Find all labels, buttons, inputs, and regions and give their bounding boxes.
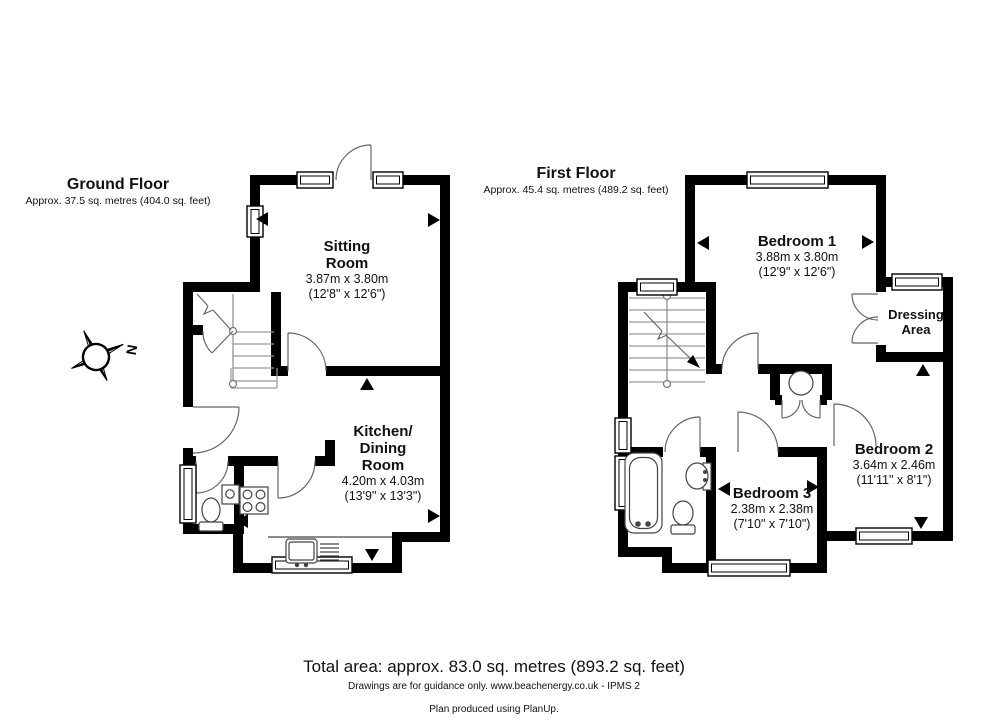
- dimension-arrow: [365, 549, 379, 561]
- dressing-door-arcs: [852, 294, 878, 343]
- window: [747, 172, 828, 188]
- bedroom3-door-arc: [738, 412, 778, 452]
- kitchen-door-arc: [278, 461, 315, 498]
- ground-floor-title: Ground Floor: [67, 176, 169, 194]
- dimension-arrow: [914, 517, 928, 529]
- first-floor-stairs: [629, 293, 705, 388]
- window: [180, 465, 196, 523]
- window: [373, 172, 403, 188]
- dimension-arrow: [697, 236, 709, 250]
- disclaimer-text: Drawings are for guidance only. www.beac…: [348, 681, 640, 693]
- ground-floor-plan: [180, 145, 450, 573]
- first-floor-title: First Floor: [536, 165, 615, 183]
- bedroom2-door-arc: [834, 404, 876, 446]
- ground-floor-stairs: [197, 294, 277, 388]
- basin-icon: [686, 463, 711, 490]
- dimension-arrow: [428, 509, 440, 523]
- bedroom3-label: Bedroom 3 2.38m x 2.38m (7'10" x 7'10"): [731, 485, 814, 532]
- window: [615, 418, 631, 453]
- dimension-arrow: [718, 482, 730, 496]
- bedroom1-label: Bedroom 1 3.88m x 3.80m (12'9" x 12'6"): [756, 233, 839, 280]
- bath-icon: [625, 453, 662, 533]
- credit-text: Plan produced using PlanUp.: [429, 704, 559, 716]
- stair-direction-line: [644, 312, 692, 360]
- total-area-text: Total area: approx. 83.0 sq. metres (893…: [303, 657, 685, 676]
- hot-water-cylinder-icon: [789, 371, 813, 395]
- bathroom-door-arc: [665, 417, 700, 452]
- stair-direction-line: [197, 294, 231, 330]
- kitchen-dining-room-label: Kitchen/ Dining Room 4.20m x 4.03m (13'9…: [342, 423, 425, 504]
- window: [637, 279, 677, 295]
- kitchen-unit-sink-icon: [222, 485, 239, 504]
- lobby-door-arc: [203, 331, 233, 353]
- window: [892, 274, 942, 290]
- toilet-icon: [671, 501, 695, 534]
- dimension-arrow: [862, 235, 874, 249]
- compass-north-label: N: [123, 343, 141, 356]
- bedroom1-door-arc: [722, 333, 758, 369]
- bedroom2-label: Bedroom 2 3.64m x 2.46m (11'11" x 8'1"): [853, 441, 936, 488]
- ground-floor-area: Approx. 37.5 sq. metres (404.0 sq. feet): [25, 195, 210, 207]
- entrance-top-door-arc: [336, 145, 371, 180]
- first-floor-area: Approx. 45.4 sq. metres (489.2 sq. feet): [483, 184, 668, 196]
- compass-rose-icon: N: [59, 318, 140, 392]
- floorplan-page: N Ground Floor Approx. 37.5 sq. metres (…: [0, 0, 990, 720]
- cupboard-door-arcs: [782, 400, 820, 418]
- window: [856, 528, 912, 544]
- dressing-area-label: Dressing Area: [888, 307, 944, 337]
- sitting-room-door-arc: [288, 333, 326, 371]
- front-door-arc: [193, 407, 239, 453]
- ground-floor-walls: [183, 175, 450, 573]
- sitting-room-label: Sitting Room 3.87m x 3.80m (12'8" x 12'6…: [306, 238, 389, 302]
- dimension-arrow: [360, 378, 374, 390]
- dimension-arrow: [428, 213, 440, 227]
- window: [297, 172, 333, 188]
- window: [708, 560, 790, 576]
- floorplan-drawing: N: [0, 0, 990, 720]
- hob-icon: [240, 487, 268, 514]
- dimension-arrow: [916, 364, 930, 376]
- wc-toilet-icon: [199, 498, 223, 531]
